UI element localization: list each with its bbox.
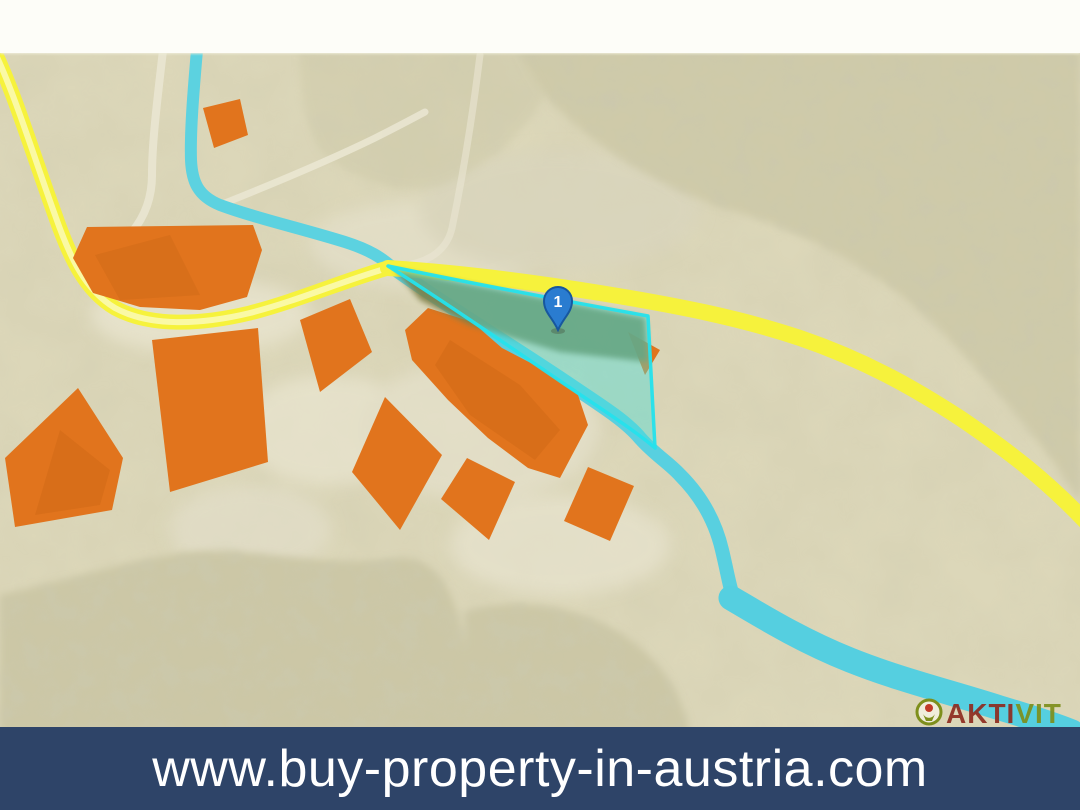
pin-label: 1 [554,294,563,311]
banner-url-text: www.buy-property-in-austria.com [152,739,928,799]
aktivit-logo-icon [917,700,941,724]
screenshot-root: 1 AKTIVIT www.buy-property-in-austria.co… [0,0,1080,810]
aerial-map[interactable]: 1 AKTIVIT [0,0,1080,810]
aktivit-logo-text: AKTIVIT [946,698,1062,729]
top-white-strip [0,0,1080,53]
website-banner: www.buy-property-in-austria.com [0,727,1080,810]
